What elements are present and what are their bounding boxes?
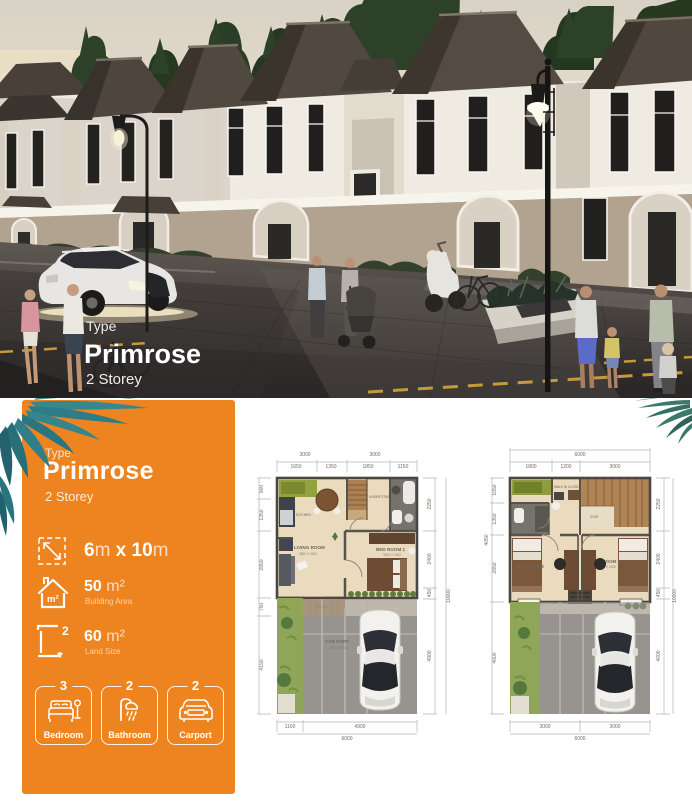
svg-text:1050: 1050: [492, 484, 498, 495]
svg-text:1150: 1150: [398, 464, 409, 470]
svg-text:2400: 2400: [656, 553, 662, 564]
svg-text:2400: 2400: [427, 553, 433, 564]
svg-text:2850: 2850: [492, 562, 498, 573]
svg-text:4900: 4900: [354, 724, 365, 730]
svg-text:4600: 4600: [492, 652, 498, 663]
svg-text:1200: 1200: [560, 464, 571, 470]
svg-text:1850: 1850: [362, 464, 373, 470]
svg-text:10000: 10000: [446, 589, 452, 603]
svg-text:CAR PORT: CAR PORT: [325, 639, 349, 644]
svg-text:4050: 4050: [484, 534, 490, 545]
svg-text:VOID: VOID: [590, 515, 599, 519]
svg-text:Type: Type: [86, 318, 117, 334]
svg-text:2: 2: [62, 624, 69, 638]
svg-text:750: 750: [259, 603, 265, 612]
svg-text:450: 450: [427, 589, 433, 598]
svg-text:900: 900: [259, 485, 265, 494]
svg-text:BED ROOM 1: BED ROOM 1: [376, 547, 406, 552]
svg-text:Primrose: Primrose: [84, 339, 201, 369]
svg-text:UNDER STAIR: UNDER STAIR: [369, 495, 391, 499]
svg-text:6000: 6000: [341, 736, 352, 742]
svg-text:LIVING ROOM: LIVING ROOM: [294, 545, 325, 550]
svg-text:4900: 4900: [427, 650, 433, 661]
svg-text:1350: 1350: [325, 464, 336, 470]
svg-text:2250: 2250: [427, 498, 433, 509]
svg-text:3000: 3000: [369, 452, 380, 458]
svg-text:1350: 1350: [492, 513, 498, 524]
svg-text:1800: 1800: [525, 464, 536, 470]
svg-text:3000: 3000: [539, 724, 550, 730]
svg-text:3000: 3000: [609, 724, 620, 730]
svg-text:1100: 1100: [285, 724, 296, 730]
svg-text:2 Storey: 2 Storey: [86, 371, 142, 388]
svg-text:4150: 4150: [259, 659, 265, 670]
svg-text:WALK IN CLOSET: WALK IN CLOSET: [554, 485, 581, 489]
svg-text:3000: 3000: [609, 464, 620, 470]
svg-text:3000: 3000: [299, 452, 310, 458]
svg-text:6000: 6000: [574, 452, 585, 458]
svg-text:KITCHEN: KITCHEN: [296, 513, 311, 517]
svg-text:2250: 2250: [656, 498, 662, 509]
svg-text:3850 X 3000: 3850 X 3000: [299, 552, 317, 556]
svg-text:3000 X 5000: 3000 X 5000: [330, 646, 348, 650]
svg-text:BED ROOM 2: BED ROOM 2: [516, 564, 544, 569]
svg-text:4600: 4600: [656, 650, 662, 661]
svg-text:450: 450: [656, 589, 662, 598]
svg-text:3000 X 2400: 3000 X 2400: [383, 553, 401, 557]
svg-text:6000: 6000: [574, 736, 585, 742]
svg-text:m²: m²: [47, 594, 59, 605]
svg-text:1350: 1350: [259, 509, 265, 520]
svg-text:2850: 2850: [259, 559, 265, 570]
svg-text:1650: 1650: [290, 464, 301, 470]
